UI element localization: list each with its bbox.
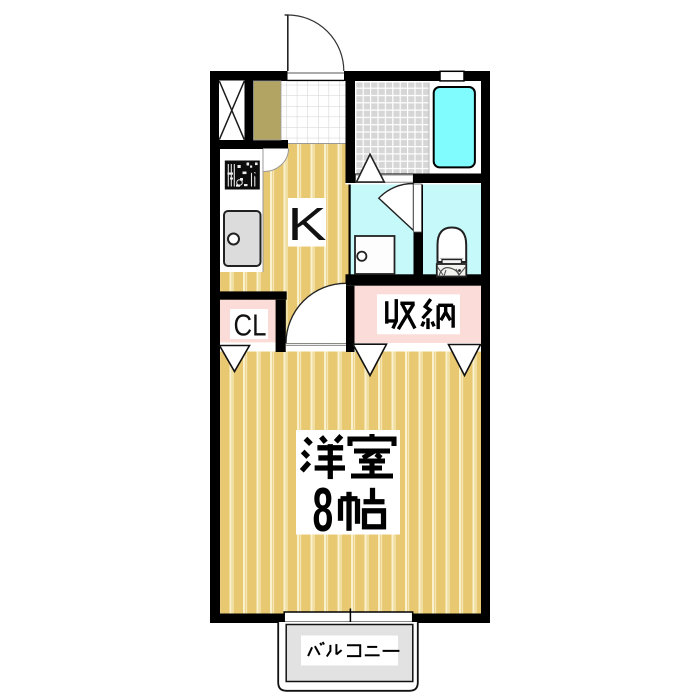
svg-text:8: 8 [313, 475, 334, 544]
svg-text:CL: CL [234, 308, 267, 343]
svg-text:K: K [288, 199, 327, 251]
